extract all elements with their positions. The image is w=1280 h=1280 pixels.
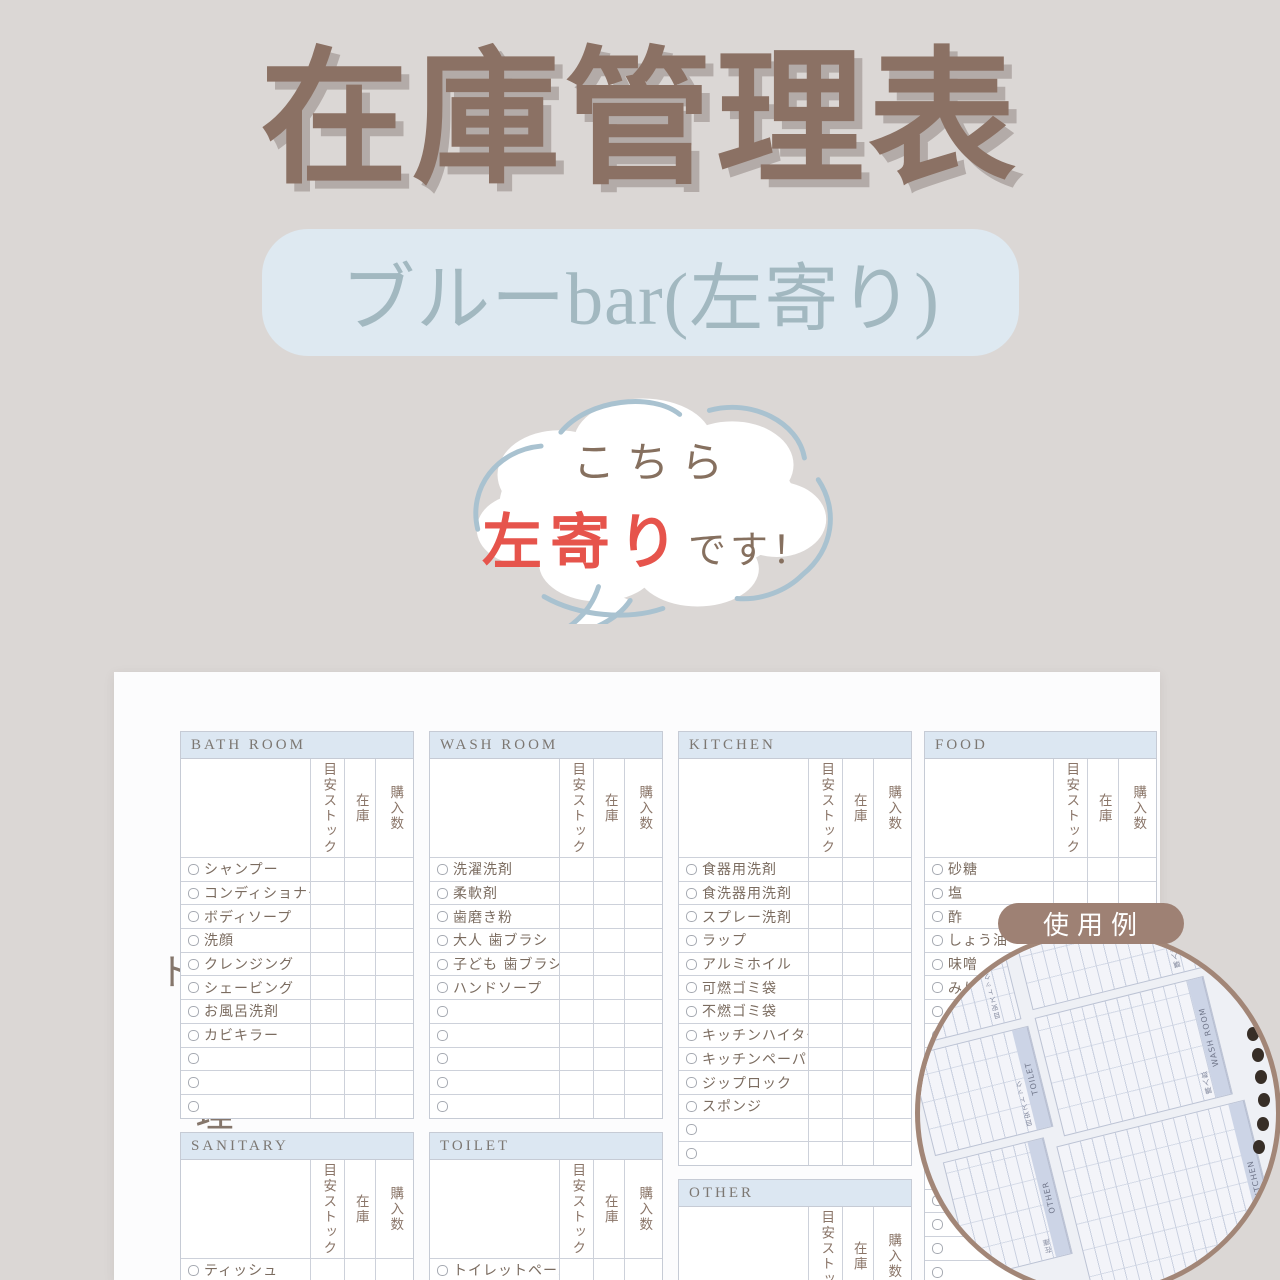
item-name-cell: 食器用洗剤 [679,858,808,881]
item-row: トイレットペーパー [430,1258,662,1280]
value-cell [310,1024,344,1047]
item-label: 塩 [948,883,963,903]
item-label: 子ども 歯ブラシ [453,954,559,974]
item-label: 砂糖 [948,859,978,879]
item-row: スプレー洗剤 [679,904,911,928]
item-name-cell [430,1071,559,1094]
value-cell [624,1048,662,1071]
value-cell [808,1142,842,1165]
value-cell [593,976,624,999]
value-cell [624,976,662,999]
item-row [181,1047,413,1071]
checkbox-icon [686,1148,697,1159]
callout-emphasis: 左寄り [482,494,686,581]
section-header: FOOD [925,732,1156,759]
value-cell [593,929,624,952]
item-name-header-cell [679,759,808,857]
item-row [430,999,662,1023]
column-header-cell: 在庫 [344,759,375,857]
column-header-cell: 購入数 [375,1160,413,1258]
value-cell [624,953,662,976]
column-header-cell: 目安ストック [310,1160,344,1258]
value-cell [344,929,375,952]
item-label: ティッシュ [204,1260,278,1280]
value-cell [559,1000,593,1023]
column-header-cell: 在庫 [842,1207,873,1280]
usage-example-label: 使用例 [998,903,1184,944]
value-cell [375,1095,413,1118]
column-header-label: 目安ストック [1064,762,1078,855]
photo-mini-section: TOILET目安ストック [915,1026,1053,1156]
item-row: アルミホイル [679,952,911,976]
photo-mini-caption: 目安ストック [982,971,1002,1020]
column-header-row: 目安ストック在庫購入数 [679,759,911,857]
item-name-cell [430,1000,559,1023]
item-row: ハンドソープ [430,975,662,999]
item-label: 不燃ゴミ袋 [702,1001,777,1021]
section-header: KITCHEN [679,732,911,759]
value-cell [344,1095,375,1118]
value-cell [842,905,873,928]
section-toilet: TOILET目安ストック在庫購入数トイレットペーパー [429,1132,663,1280]
value-cell [873,953,911,976]
item-name-cell: 食洗器用洗剤 [679,882,808,905]
item-name-cell: トイレットペーパー [430,1259,559,1280]
item-row: 可燃ゴミ袋 [679,975,911,999]
value-cell [344,1000,375,1023]
value-cell [593,882,624,905]
value-cell [1087,882,1118,905]
value-cell [873,976,911,999]
checkbox-icon [188,1265,199,1276]
item-label: スポンジ [702,1096,762,1116]
column-header-cell: 在庫 [344,1160,375,1258]
variant-pill: ブルーbar(左寄り) [262,229,1019,356]
column-header-row: 目安ストック在庫購入数 [925,759,1156,857]
checkbox-icon [686,935,697,946]
value-cell [873,1024,911,1047]
column-header-cell: 購入数 [873,759,911,857]
value-cell [375,929,413,952]
item-name-cell: 洗濯洗剤 [430,858,559,881]
item-label: お風呂洗剤 [204,1001,279,1021]
item-name-cell [679,1119,808,1142]
item-name-cell: 子ども 歯ブラシ [430,953,559,976]
item-label: カビキラー [204,1025,279,1045]
value-cell [593,1024,624,1047]
column-header-label: 購入数 [388,1186,402,1233]
value-cell [624,905,662,928]
value-cell [310,1071,344,1094]
item-name-cell [181,1048,310,1071]
value-cell [559,976,593,999]
value-cell [344,976,375,999]
value-cell [559,1024,593,1047]
item-name-cell [679,1142,808,1165]
checkbox-icon [437,1265,448,1276]
value-cell [624,1259,662,1280]
column-header-label: 目安ストック [570,762,584,855]
item-name-cell: スポンジ [679,1095,808,1118]
item-row: 子ども 歯ブラシ [430,952,662,976]
value-cell [375,1000,413,1023]
checkbox-icon [188,888,199,899]
value-cell [873,1142,911,1165]
column-header-cell: 購入数 [1118,759,1156,857]
item-row: キッチンペーパー [679,1047,911,1071]
section-header: BATH ROOM [181,732,413,759]
checkbox-icon [437,888,448,899]
checkbox-icon [686,864,697,875]
photo-mini-section: OTHER在庫 [943,1137,1073,1279]
column-header-cell: 在庫 [593,1160,624,1258]
item-name-cell: 砂糖 [925,858,1053,881]
item-label: ハンドソープ [453,978,542,998]
value-cell [344,858,375,881]
item-name-cell: アルミホイル [679,953,808,976]
item-label: キッチンペーパー [702,1049,808,1069]
value-cell [842,1000,873,1023]
item-row: 柔軟剤 [430,881,662,905]
item-row: コンディショナー [181,881,413,905]
column-header-label: 在庫 [602,1194,616,1225]
item-name-cell: 洗顔 [181,929,310,952]
item-name-cell: ティッシュ [181,1259,310,1280]
item-row: 洗顔 [181,928,413,952]
item-row: スポンジ [679,1094,911,1118]
binder-hole-icon [1257,1117,1269,1131]
column-header-label: 購入数 [637,785,651,832]
checkbox-icon [437,1006,448,1017]
item-row: クレンジング [181,952,413,976]
column-header-label: 購入数 [1131,785,1145,832]
item-name-cell: ボディソープ [181,905,310,928]
checkbox-icon [188,864,199,875]
value-cell [559,1048,593,1071]
column-header-row: 目安ストック在庫購入数 [430,1160,662,1258]
item-row: 食洗器用洗剤 [679,881,911,905]
column-header-cell: 購入数 [624,759,662,857]
value-cell [1118,858,1156,881]
value-cell [808,1095,842,1118]
value-cell [842,882,873,905]
checkbox-icon [188,1077,199,1088]
item-name-cell: お風呂洗剤 [181,1000,310,1023]
checkbox-icon [188,911,199,922]
value-cell [375,953,413,976]
column-header-label: 在庫 [602,793,616,824]
value-cell [842,1119,873,1142]
variant-pill-label: ブルーbar(左寄り) [341,239,940,346]
item-row [430,1047,662,1071]
checkbox-icon [437,911,448,922]
value-cell [808,953,842,976]
value-cell [624,1095,662,1118]
item-name-cell [181,1095,310,1118]
value-cell [842,1095,873,1118]
column-header-label: 在庫 [851,1241,865,1272]
value-cell [310,882,344,905]
item-name-cell: ハンドソープ [430,976,559,999]
checkbox-icon [437,935,448,946]
checkbox-icon [686,888,697,899]
item-row: ジップロック [679,1070,911,1094]
item-name-cell: クレンジング [181,953,310,976]
value-cell [624,1024,662,1047]
value-cell [344,1048,375,1071]
item-label: 酢 [948,907,963,927]
value-cell [873,1119,911,1142]
item-label: ジップロック [702,1073,792,1093]
item-label: 食器用洗剤 [702,859,777,879]
value-cell [808,976,842,999]
item-row: ティッシュ [181,1258,413,1280]
checkbox-icon [686,1053,697,1064]
value-cell [593,1000,624,1023]
item-name-cell: キッチンペーパー [679,1048,808,1071]
value-cell [593,953,624,976]
item-label: 可燃ゴミ袋 [702,978,777,998]
value-cell [310,1259,344,1280]
item-label: シャンプー [204,859,279,879]
item-name-cell: 大人 歯ブラシ [430,929,559,952]
callout-cloud: こちら 左寄り です！ [450,380,846,624]
item-row [181,1094,413,1118]
value-cell [808,882,842,905]
value-cell [310,1048,344,1071]
section-wash-room: WASH ROOM目安ストック在庫購入数洗濯洗剤柔軟剤歯磨き粉大人 歯ブラシ子ど… [429,731,663,1119]
item-label: 歯磨き粉 [453,907,513,927]
item-name-cell: 塩 [925,882,1053,905]
item-name-header-cell [925,759,1053,857]
value-cell [1053,858,1087,881]
value-cell [310,1000,344,1023]
value-cell [344,953,375,976]
item-name-cell: 可燃ゴミ袋 [679,976,808,999]
value-cell [375,1024,413,1047]
column-header-label: 在庫 [851,793,865,824]
item-label: スプレー洗剤 [702,907,792,927]
section-header: OTHER [679,1180,911,1207]
value-cell [344,905,375,928]
column-header-cell: 在庫 [593,759,624,857]
page-title: 在庫管理表 [0,44,1280,199]
callout-suffix: です！ [688,519,814,574]
item-label: アルミホイル [702,954,792,974]
checkbox-icon [686,982,697,993]
checkbox-icon [932,911,943,922]
item-row [679,1141,911,1165]
checkbox-icon [437,982,448,993]
section-bath-room: BATH ROOM目安ストック在庫購入数シャンプーコンディショナーボディソープ洗… [180,731,414,1119]
value-cell [375,976,413,999]
column-header-label: 在庫 [353,1194,367,1225]
section-header: SANITARY [181,1133,413,1160]
value-cell [375,1071,413,1094]
column-header-row: 目安ストック在庫購入数 [679,1207,911,1280]
binder-hole-icon [1252,1048,1264,1062]
checkbox-icon [686,1006,697,1017]
item-row [181,1070,413,1094]
item-row: 不燃ゴミ袋 [679,999,911,1023]
item-name-header-cell [679,1207,808,1280]
item-row [430,1094,662,1118]
item-name-header-cell [181,759,310,857]
item-name-cell: シャンプー [181,858,310,881]
checkbox-icon [437,1030,448,1041]
checkbox-icon [932,888,943,899]
item-label: コンディショナー [204,883,310,903]
checkbox-icon [188,959,199,970]
column-header-cell: 目安ストック [310,759,344,857]
checkbox-icon [188,1030,199,1041]
value-cell [344,1259,375,1280]
callout-line2: 左寄り です！ [482,494,814,581]
value-cell [1087,858,1118,881]
item-name-cell: コンディショナー [181,882,310,905]
column-header-label: 購入数 [637,1186,651,1233]
item-row: お風呂洗剤 [181,999,413,1023]
item-row: 食器用洗剤 [679,857,911,881]
value-cell [624,1071,662,1094]
value-cell [842,1142,873,1165]
checkbox-icon [686,1101,697,1112]
checkbox-icon [437,1101,448,1112]
value-cell [842,929,873,952]
value-cell [842,1048,873,1071]
item-label: トイレットペーパー [453,1260,559,1280]
item-name-cell [430,1024,559,1047]
value-cell [593,858,624,881]
value-cell [808,905,842,928]
checkbox-icon [932,864,943,875]
item-label: 洗濯洗剤 [453,859,513,879]
value-cell [344,1024,375,1047]
item-row: シャンプー [181,857,413,881]
value-cell [593,1071,624,1094]
section-sanitary: SANITARY目安ストック在庫購入数ティッシュ [180,1132,414,1280]
value-cell [808,1119,842,1142]
value-cell [559,1095,593,1118]
item-name-cell: シェービング [181,976,310,999]
item-label: クレンジング [204,954,294,974]
value-cell [559,953,593,976]
column-header-cell: 目安ストック [1053,759,1087,857]
value-cell [808,858,842,881]
value-cell [873,929,911,952]
checkbox-icon [188,1053,199,1064]
item-label: 大人 歯ブラシ [453,930,548,950]
column-header-label: 目安ストック [570,1163,584,1256]
section-header: WASH ROOM [430,732,662,759]
value-cell [808,1048,842,1071]
column-header-cell: 目安ストック [559,1160,593,1258]
checkbox-icon [686,1124,697,1135]
value-cell [375,1048,413,1071]
item-row [430,1070,662,1094]
value-cell [344,882,375,905]
item-label: ボディソープ [204,907,292,927]
item-row: キッチンハイター [679,1023,911,1047]
value-cell [624,1000,662,1023]
value-cell [808,1000,842,1023]
value-cell [375,858,413,881]
checkbox-icon [188,935,199,946]
binder-hole-icon [1258,1093,1270,1107]
value-cell [1053,882,1087,905]
callout-line1: こちら [561,429,735,490]
checkbox-icon [437,959,448,970]
column-header-cell: 在庫 [1087,759,1118,857]
item-row: 大人 歯ブラシ [430,928,662,952]
value-cell [559,1259,593,1280]
value-cell [593,905,624,928]
value-cell [842,1024,873,1047]
value-cell [310,953,344,976]
value-cell [873,1071,911,1094]
value-cell [808,1071,842,1094]
column-header-label: 在庫 [1096,793,1110,824]
value-cell [842,1071,873,1094]
value-cell [593,1095,624,1118]
item-name-cell: カビキラー [181,1024,310,1047]
value-cell [559,1071,593,1094]
item-row: ボディソープ [181,904,413,928]
checkbox-icon [188,1006,199,1017]
item-label: 食洗器用洗剤 [702,883,792,903]
item-name-cell: スプレー洗剤 [679,905,808,928]
item-label: キッチンハイター [702,1025,808,1045]
column-header-cell: 購入数 [375,759,413,857]
value-cell [1118,882,1156,905]
value-cell [375,882,413,905]
item-label: ラップ [702,930,747,950]
value-cell [873,1095,911,1118]
value-cell [559,882,593,905]
item-row: 塩 [925,881,1156,905]
value-cell [842,858,873,881]
value-cell [873,1000,911,1023]
column-header-label: 目安ストック [321,1163,335,1256]
value-cell [593,1048,624,1071]
column-header-cell: 購入数 [873,1207,911,1280]
value-cell [559,858,593,881]
item-row [430,1023,662,1047]
value-cell [310,905,344,928]
column-header-cell: 目安ストック [559,759,593,857]
value-cell [808,1024,842,1047]
value-cell [310,929,344,952]
value-cell [344,1071,375,1094]
item-label: シェービング [204,978,294,998]
item-row [679,1118,911,1142]
value-cell [624,858,662,881]
item-name-cell [430,1048,559,1071]
item-label: 洗顔 [204,930,234,950]
value-cell [310,976,344,999]
value-cell [375,905,413,928]
column-header-row: 目安ストック在庫購入数 [181,1160,413,1258]
binder-hole-icon [1253,1140,1265,1154]
section-other: OTHER目安ストック在庫購入数 [678,1179,912,1280]
binder-hole-icon [1255,1070,1267,1084]
item-row: ラップ [679,928,911,952]
value-cell [559,905,593,928]
checkbox-icon [437,1077,448,1088]
photo-mini-caption: 購入数 [1168,944,1182,969]
item-row: 洗濯洗剤 [430,857,662,881]
checkbox-icon [188,982,199,993]
